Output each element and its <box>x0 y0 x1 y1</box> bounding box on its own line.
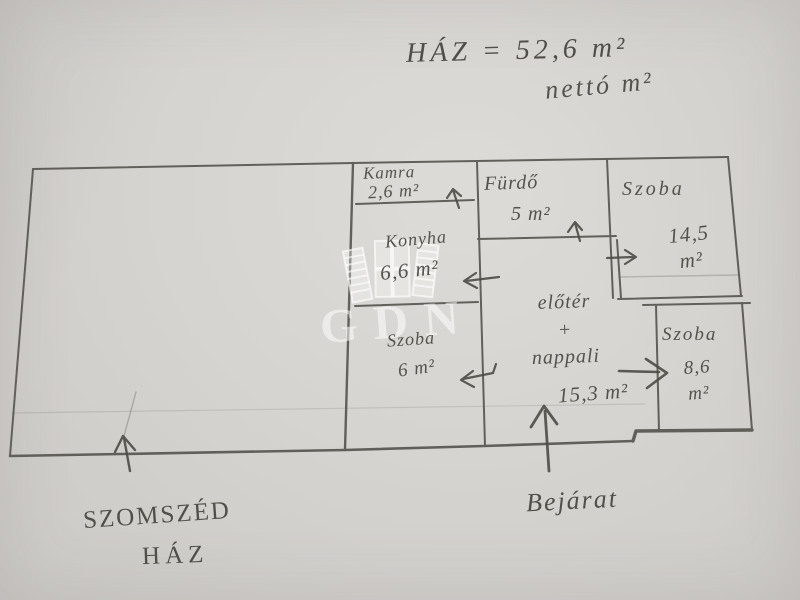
entrance-arrow-icon <box>531 406 557 471</box>
szoba-kis-door-arrow-icon <box>461 364 496 387</box>
room-name-furdo: Fürdő <box>484 168 539 198</box>
wall-szoba-nagy-bottom <box>618 296 742 299</box>
paper-crease-line <box>12 404 645 413</box>
room-area-szoba-nagy: 14,5 m² <box>649 217 730 277</box>
wall-furdo-bottom <box>478 236 616 239</box>
wall-konyha-bottom <box>355 302 478 306</box>
room-area-szoba-jobb: 8,6 m² <box>658 352 737 408</box>
kamra-door-arrow-icon <box>447 189 461 208</box>
house-total-label: HÁZ = 52,6 m² <box>406 28 629 73</box>
room-area-furdo: 5 m² <box>511 200 550 228</box>
room-name-konyha: Konyha <box>384 224 448 254</box>
wall-outer-bottom-right <box>633 430 752 441</box>
room-area-konyha: 6,6 m² <box>379 253 441 288</box>
room-name-szoba-kis: Szoba <box>386 325 436 353</box>
room-area-szoba-kis: 6 m² <box>396 354 437 386</box>
wall-szoba-nagy-bottom-faint <box>619 275 739 277</box>
wall-szoba-jobb-top <box>643 303 750 305</box>
wall-eloter-left <box>477 161 485 446</box>
room-name-szoba-nagy: Szoba <box>622 175 685 203</box>
floorplan-photo: GDN HÁZ = 52,6 m² nettó m² Kamra 2,6 m² … <box>0 0 800 600</box>
wall-outer-bottom <box>10 441 633 456</box>
neighbor-arrow-faint <box>124 392 136 436</box>
entrance-label: Bejárat <box>525 481 619 522</box>
room-area-kamra: 2,6 m² <box>367 178 420 206</box>
room-area-eloter-nappali: 15,3 m² <box>557 377 629 411</box>
wall-furdo-szoba-divider <box>607 159 613 298</box>
furdo-door-arrow-icon <box>568 222 582 241</box>
room-name-szoba-jobb: Szoba <box>662 322 717 349</box>
neighbor-house-label-line2: HÁZ <box>141 537 209 574</box>
room-name-eloter-nappali: előtér + nappali <box>494 287 637 375</box>
wall-neighbor-divider <box>345 163 353 450</box>
